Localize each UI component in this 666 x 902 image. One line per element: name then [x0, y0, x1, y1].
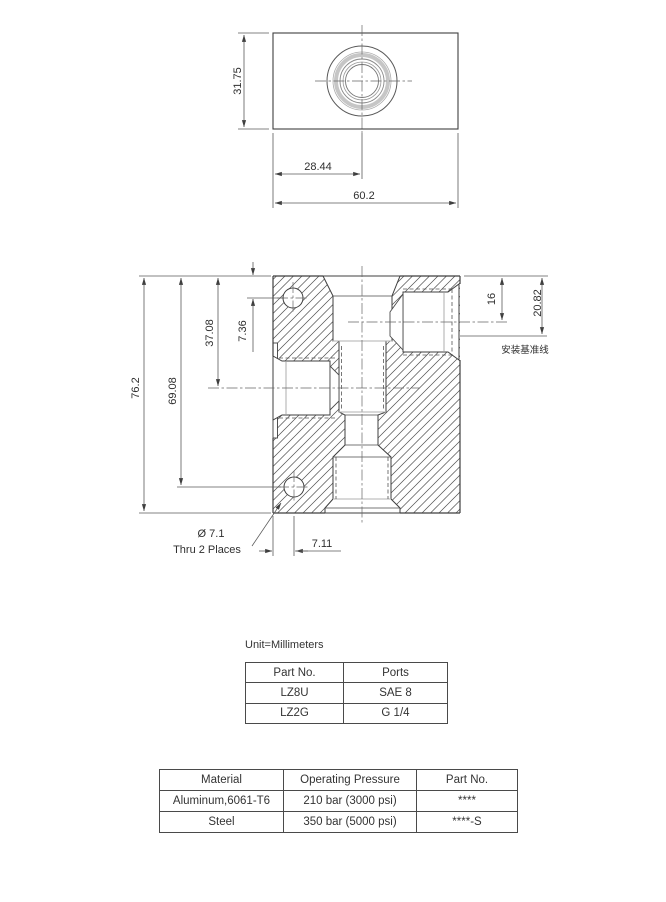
dimension-37-08: 37.08: [204, 278, 218, 386]
ports-table-cell: LZ2G: [246, 703, 344, 723]
ports-table-cell: SAE 8: [344, 683, 448, 703]
hole-callout-diameter: Ø 7.1: [198, 528, 225, 540]
dimension-69-08: 69.08: [167, 278, 281, 487]
dim-label-left-port-y: 37.08: [204, 319, 216, 347]
ports-table-header-ports: Ports: [344, 663, 448, 683]
table-row: Part No. Ports: [246, 663, 448, 683]
ports-table-cell: G 1/4: [344, 703, 448, 723]
specs-table-cell: ****: [417, 791, 518, 812]
engineering-drawing-page: 31.75 28.44 60.2: [0, 0, 666, 902]
ports-table-cell: LZ8U: [246, 683, 344, 703]
dim-label-datum-y: 20.82: [532, 289, 544, 317]
dim-label-hole-offset-x: 7.11: [312, 538, 333, 550]
specs-table: Material Operating Pressure Part No. Alu…: [159, 769, 518, 833]
table-row: LZ2G G 1/4: [246, 703, 448, 723]
specs-table-cell: ****-S: [417, 812, 518, 833]
drawing-canvas: 31.75 28.44 60.2: [0, 0, 666, 902]
dim-label-right-port-y: 16: [486, 293, 498, 305]
table-row: Steel 350 bar (5000 psi) ****-S: [160, 812, 518, 833]
table-row: LZ8U SAE 8: [246, 683, 448, 703]
table-row: Material Operating Pressure Part No.: [160, 770, 518, 791]
dimension-31-75: 31.75: [232, 33, 269, 129]
table-row: Aluminum,6061-T6 210 bar (3000 psi) ****: [160, 791, 518, 812]
dim-label-depth: 31.75: [232, 67, 244, 95]
hole-callout-note: Thru 2 Places: [173, 544, 241, 556]
dimension-7-11: 7.11: [259, 516, 341, 556]
mounting-datum-label: 安装基准线: [501, 344, 549, 356]
specs-table-cell: Steel: [160, 812, 284, 833]
dimension-28-44: 28.44: [273, 133, 362, 208]
dim-label-port-center-x: 28.44: [304, 161, 332, 173]
top-view: 31.75 28.44 60.2: [232, 25, 458, 208]
top-view-centerlines: [315, 25, 412, 133]
specs-table-cell: 210 bar (3000 psi): [284, 791, 417, 812]
specs-table-header-pressure: Operating Pressure: [284, 770, 417, 791]
hole-callout: Ø 7.1 Thru 2 Places: [173, 503, 281, 556]
specs-table-header-part-no: Part No.: [417, 770, 518, 791]
unit-note: Unit=Millimeters: [245, 639, 324, 651]
dim-label-upper-hole-y: 7.36: [237, 320, 249, 341]
specs-table-cell: Aluminum,6061-T6: [160, 791, 284, 812]
front-section-view: 76.2 69.08 37.08 7.36: [130, 262, 549, 556]
dimension-20-82: 20.82 安装基准线: [460, 278, 549, 356]
specs-table-cell: 350 bar (5000 psi): [284, 812, 417, 833]
dim-label-width: 60.2: [353, 190, 374, 202]
specs-table-header-material: Material: [160, 770, 284, 791]
ports-table-header-part-no: Part No.: [246, 663, 344, 683]
ports-table: Part No. Ports LZ8U SAE 8 LZ2G G 1/4: [245, 662, 448, 724]
dimension-76-2: 76.2: [130, 276, 271, 513]
dim-label-overall-height: 76.2: [130, 377, 142, 398]
dim-label-lower-hole-y: 69.08: [167, 377, 179, 405]
dimension-60-2: 60.2: [275, 133, 458, 208]
